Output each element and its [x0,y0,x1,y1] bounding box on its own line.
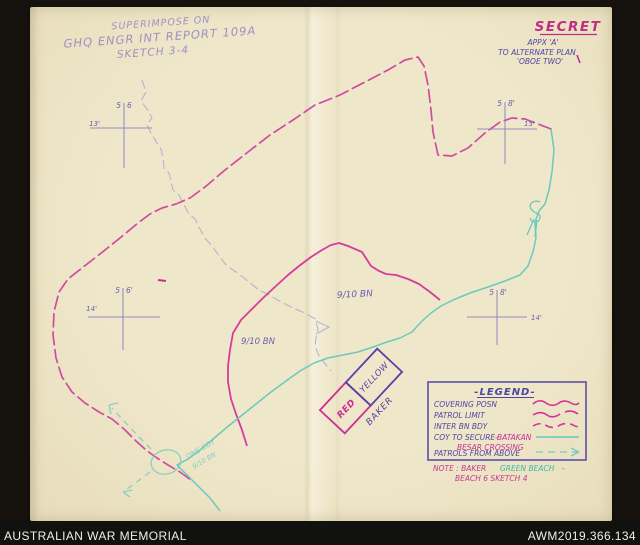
elevation-label: 15' [524,120,535,128]
note-line2: BEACH 6 SKETCH 4 [455,474,528,483]
battalion-label-center: 9/10 BN [337,289,374,301]
elevation-label: 14' [86,305,97,313]
battalion-label-west: 9/10 BN [241,337,276,347]
patrol-from-above-arrow-nw [109,403,151,449]
elevation-label: 13' [89,120,100,128]
note-prefix: NOTE : BAKER [433,464,486,473]
grid-cross-ne: 5 8' 15' [477,99,537,164]
legend: -LEGEND- COVERING POSN PATROL LIMIT INTE… [428,382,586,460]
grid-value: 8' [508,99,515,108]
classification-block: SECRET APPX 'A' TO ALTERNATE PLAN 'OBOE … [498,19,601,66]
legend-row-accent: BATAKAN [497,433,532,442]
stray-mark [158,280,166,281]
codename-label: 'OBOE TWO' [517,57,563,66]
archival-photograph: 5 6 13' 5 8' 15' 5 8' 14' 5 6' 14' SUPER [0,0,640,545]
legend-symbol-patrols-arrow [536,448,579,456]
legend-row-label: PATROLS FROM ABOVE [434,449,520,458]
secret-label: SECRET [535,19,602,35]
appendix-label: APPX 'A' [527,38,559,47]
route-knot-squiggle [527,201,540,237]
grid-cross-e: 5 8' 14' [467,288,542,345]
grid-value: 5 [489,288,494,297]
accession-number: AWM2019.366.134 [528,530,636,542]
note-highlight: GREEN BEACH [500,464,555,473]
grid-cross-nw: 5 6 13' [89,101,152,168]
grid-value: 5 [497,99,502,108]
note-dash: - [562,464,565,473]
beach-box: RED YELLOW BAKER [320,349,414,445]
grid-value: 5 [116,101,121,110]
annotation-tick [577,55,580,63]
footer-bar: AUSTRALIAN WAR MEMORIAL AWM2019.366.134 [0,521,640,545]
legend-row-label: INTER BN BDY [434,422,489,431]
objective-circle [148,447,183,478]
legend-row-label: COVERING POSN [434,400,497,409]
legend-row-label: PATROL LIMIT [434,411,486,420]
elevation-label: 14' [531,314,542,322]
red-beach-label: RED [336,398,358,421]
grid-value: 6' [126,286,133,295]
grid-value: 5 [115,286,120,295]
institution-label: AUSTRALIAN WAR MEMORIAL [4,530,187,542]
map-drawing: 5 6 13' 5 8' 15' 5 8' 14' 5 6' 14' SUPER [0,0,640,545]
legend-symbol-patrol-limit [533,411,578,417]
patrol-from-above-arrow-sw [123,472,150,497]
baker-beach-label: BAKER [364,395,395,428]
legend-row-label: COY TO SECURE- [434,433,498,442]
note-block: NOTE : BAKER GREEN BEACH - BEACH 6 SKETC… [433,464,565,483]
superimpose-stamp: SUPERIMPOSE ON GHQ ENGR INT REPORT 109A … [62,11,257,64]
grid-value: 6 [127,101,132,110]
legend-symbol-covering-posn [533,401,579,405]
plan-label: TO ALTERNATE PLAN [498,48,576,57]
grid-cross-w: 5 6' 14' [86,286,160,350]
legend-title: -LEGEND- [474,387,535,398]
legend-symbol-inter-bn-bdy [533,424,580,428]
grid-value: 8' [500,288,507,297]
stamp-line3: SKETCH 3-4 [117,44,190,61]
